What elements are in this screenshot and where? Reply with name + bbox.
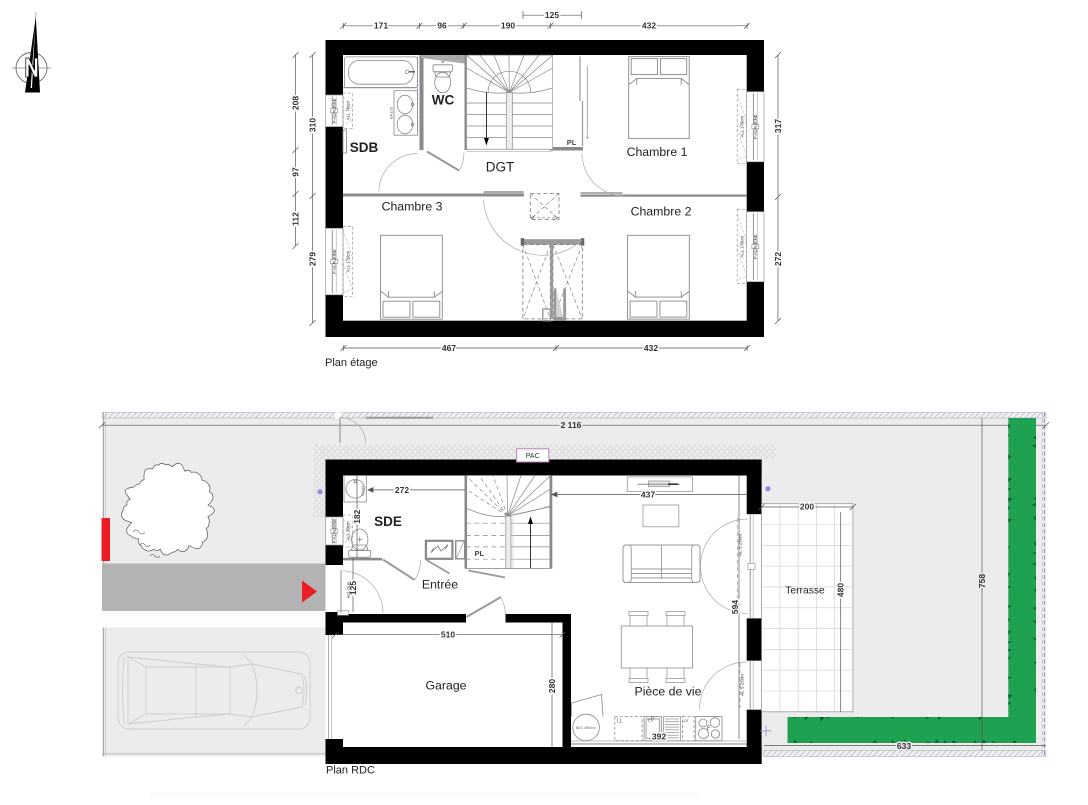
svg-text:LV: LV xyxy=(684,718,689,723)
svg-text:480: 480 xyxy=(836,583,846,597)
svg-text:EV: EV xyxy=(648,718,654,723)
svg-text:208: 208 xyxy=(291,96,301,110)
svg-text:758: 758 xyxy=(977,574,987,588)
svg-text:Chambre 2: Chambre 2 xyxy=(631,205,692,219)
svg-text:BEC Ø60cm: BEC Ø60cm xyxy=(576,726,596,730)
svg-text:200: 200 xyxy=(800,502,814,512)
svg-text:Entrée: Entrée xyxy=(422,578,458,592)
svg-text:310: 310 xyxy=(308,118,318,132)
svg-text:AVL 0cm: AVL 0cm xyxy=(346,581,351,598)
svg-text:F-ALPLEINE: F-ALPLEINE xyxy=(332,249,337,274)
svg-text:ALL 176cm: ALL 176cm xyxy=(739,235,744,257)
svg-text:125: 125 xyxy=(545,10,559,20)
svg-text:SDE: SDE xyxy=(374,514,402,529)
svg-text:112: 112 xyxy=(291,212,301,226)
svg-text:ALL 176cm: ALL 176cm xyxy=(345,250,350,272)
svg-text:PL: PL xyxy=(475,549,485,558)
svg-text:272: 272 xyxy=(773,252,783,266)
svg-text:Terrasse: Terrasse xyxy=(785,586,825,597)
svg-text:ALL 90cm: ALL 90cm xyxy=(345,521,350,541)
svg-text:432: 432 xyxy=(644,343,658,353)
svg-text:272: 272 xyxy=(395,485,409,495)
svg-text:437: 437 xyxy=(641,489,655,499)
svg-text:510: 510 xyxy=(441,630,455,640)
svg-text:Pièce de vie: Pièce de vie xyxy=(635,685,702,699)
svg-text:WC: WC xyxy=(432,93,455,108)
svg-text:AL S 25cm: AL S 25cm xyxy=(738,534,743,556)
svg-text:AL S 25cm: AL S 25cm xyxy=(740,674,745,696)
svg-text:432: 432 xyxy=(642,21,656,31)
svg-text:F: F xyxy=(707,726,711,732)
svg-text:Garage: Garage xyxy=(425,679,466,693)
svg-text:2 116: 2 116 xyxy=(561,420,582,430)
svg-text:97: 97 xyxy=(291,167,301,177)
svg-text:Chambre 1: Chambre 1 xyxy=(627,145,688,159)
svg-text:PAC: PAC xyxy=(526,453,540,460)
svg-text:F-ALPLEINE: F-ALPLEINE xyxy=(332,519,337,544)
svg-text:279: 279 xyxy=(308,252,318,266)
svg-text:Plan RDC: Plan RDC xyxy=(326,765,375,777)
svg-text:F-ALPLEINE: F-ALPLEINE xyxy=(332,98,337,123)
svg-text:467: 467 xyxy=(442,343,456,353)
svg-text:392: 392 xyxy=(652,732,666,742)
svg-text:Chambre 3: Chambre 3 xyxy=(382,200,443,214)
svg-text:594: 594 xyxy=(730,600,740,614)
svg-text:DGT: DGT xyxy=(486,160,515,175)
svg-text:SDB: SDB xyxy=(350,140,379,155)
svg-text:182: 182 xyxy=(352,509,362,523)
svg-text:BA120: BA120 xyxy=(389,106,394,119)
svg-text:171: 171 xyxy=(374,21,388,31)
svg-text:Plan étage: Plan étage xyxy=(325,357,378,369)
svg-text:PL: PL xyxy=(567,138,577,147)
svg-text:ALL 176cm: ALL 176cm xyxy=(739,116,744,138)
svg-text:F-ALPLEINE: F-ALPLEINE xyxy=(753,234,758,259)
svg-text:F-ALPLEINE: F-ALPLEINE xyxy=(753,114,758,139)
svg-text:60x60: 60x60 xyxy=(361,486,365,496)
svg-text:633: 633 xyxy=(897,741,911,751)
svg-text:280: 280 xyxy=(547,679,557,693)
svg-text:190: 190 xyxy=(501,21,515,31)
svg-text:317: 317 xyxy=(773,119,783,133)
svg-text:LL: LL xyxy=(617,719,623,725)
svg-text:96: 96 xyxy=(437,21,447,31)
svg-text:ALL 76cm: ALL 76cm xyxy=(345,101,350,121)
